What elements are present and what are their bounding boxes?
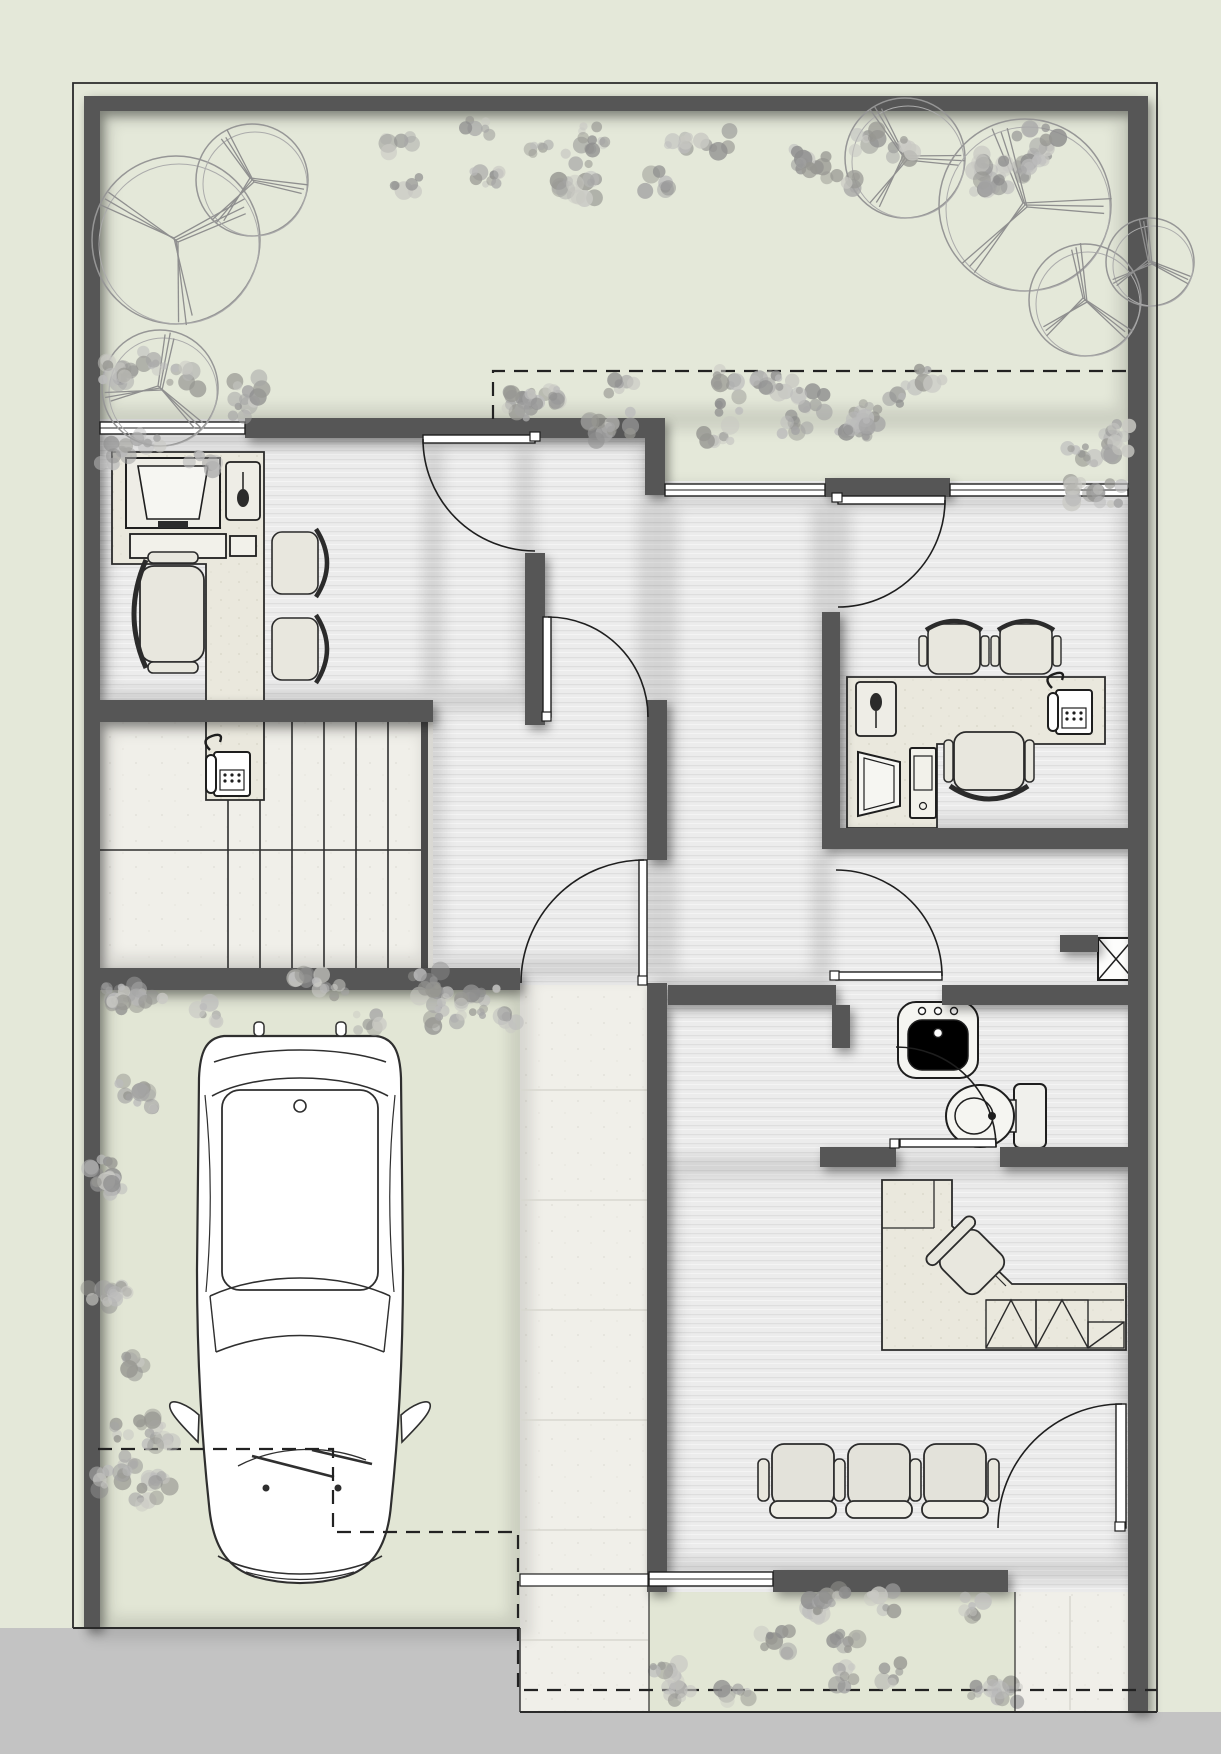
car-top-view [170,1022,431,1583]
office1-mouse [237,489,249,507]
wall-bath-top-right [942,985,1128,1005]
car-body [197,1036,403,1583]
window-passage-top [665,484,825,496]
office2-mouse [870,693,882,711]
wall-bath-bottom-right [1000,1147,1128,1167]
wall-corridor-lower [647,983,667,1592]
wall-bath-stub [832,1005,850,1048]
wash-basin [898,1002,978,1078]
office1-executive-chair [134,552,204,673]
driveway-apron-right [520,1712,1221,1754]
wall-office1-right-pier [525,553,545,725]
wall-right [1128,96,1148,1712]
stair-stringer-edge [421,722,428,968]
office1-monitor-base [158,521,188,528]
office2-task-chair [944,732,1034,799]
staircase-floor [100,722,433,968]
floor-plan-drawing [0,0,1221,1754]
walkway-gate-line [520,1574,648,1586]
compound-wall-top [84,96,1148,111]
wall-shaft-stub [1060,935,1098,952]
wall-left [84,96,100,1628]
driveway-apron-left [0,1628,520,1754]
office2-guest-chair-2 [991,621,1061,674]
exit-path [1015,1592,1128,1712]
floor-plan-canvas [0,0,1221,1754]
wall-office1-bottom [84,700,433,722]
wall-bath-bottom-left [820,1147,896,1167]
office1-monitor-screen [138,466,208,519]
entry-walkway [520,985,649,1712]
wall-corridor-upper [647,700,667,860]
wall-entry-corner-stub [645,438,665,495]
waiting-chair-armrest-end [988,1459,999,1501]
wall-office2-left [822,612,840,828]
office2-guest-chair-1 [919,621,989,674]
wall-office2-top [825,478,950,497]
wall-office2-bottom [822,828,1128,849]
wall-bath-top-left [668,985,836,1005]
office1-keypad [230,536,256,556]
window-waiting-bottom [649,1572,773,1586]
shrub-icon [969,171,1007,197]
